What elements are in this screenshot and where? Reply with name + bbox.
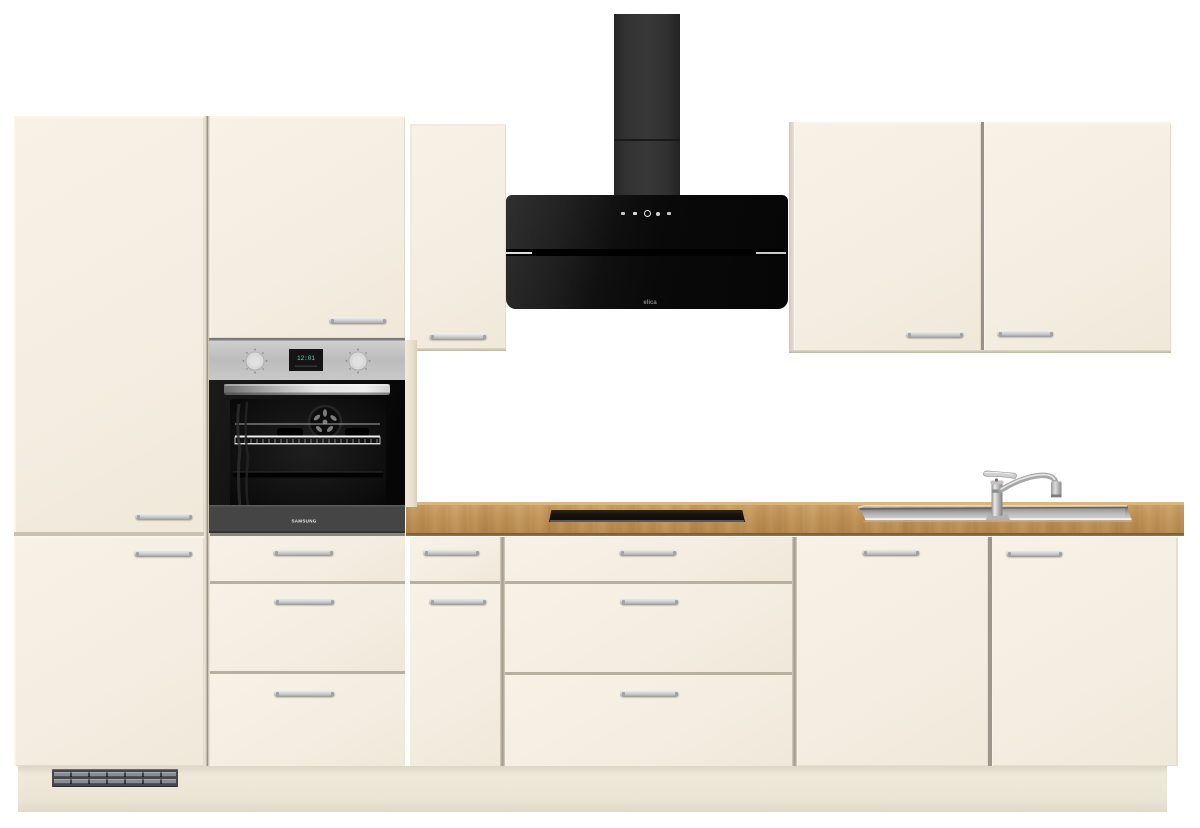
svg-text:12:01: 12:01 [297,355,315,362]
svg-text:SAMSUNG: SAMSUNG [291,519,316,524]
